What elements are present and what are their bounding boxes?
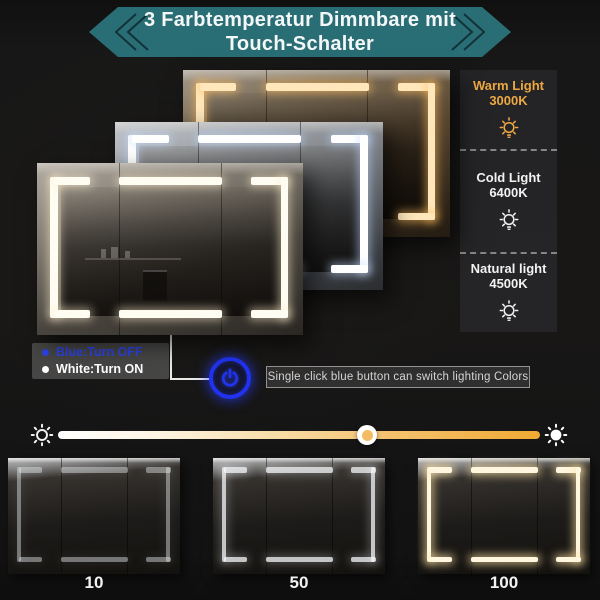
- reflected-bottle: [101, 249, 106, 258]
- led-strip: [222, 467, 227, 562]
- led-strip: [281, 177, 288, 318]
- legend-row-on: White:Turn ON: [42, 362, 169, 377]
- led-strip: [61, 467, 127, 472]
- reflected-towel: [143, 270, 167, 301]
- led-strip: [429, 467, 452, 472]
- touch-tip-text: Single click blue button can switch ligh…: [268, 371, 529, 383]
- mirror-brightness-50: [213, 458, 385, 574]
- touch-tip-box: Single click blue button can switch ligh…: [266, 366, 530, 388]
- brightness-level-10: 10: [8, 572, 180, 594]
- led-strip: [251, 310, 288, 318]
- legend-on-label: White:Turn ON: [56, 362, 143, 377]
- callout-line-horizontal: [170, 378, 211, 380]
- led-strip: [266, 83, 369, 91]
- mode-label: Cold Light: [476, 170, 540, 185]
- light-mode-panel: Warm Light 3000K Cold Light 6400K: [460, 70, 557, 332]
- led-strip: [61, 557, 127, 562]
- led-strip: [54, 310, 90, 318]
- led-strip: [266, 467, 332, 472]
- dimmer-slider-track[interactable]: [58, 431, 540, 439]
- brightness-level-50: 50: [213, 572, 385, 594]
- led-strip: [224, 467, 247, 472]
- light-mode-warm: Warm Light 3000K: [460, 70, 557, 149]
- mode-label: Natural light: [471, 261, 547, 276]
- mode-label: Warm Light: [473, 78, 544, 93]
- page-background: 3 Farbtemperatur Dimmbare mit Touch-Scha…: [0, 0, 600, 600]
- mode-kelvin: 3000K: [473, 93, 544, 108]
- led-strip: [360, 135, 368, 273]
- led-strip: [331, 265, 369, 273]
- page-title-line1: 3 Farbtemperatur Dimmbare mit: [144, 8, 456, 32]
- reflected-bottle: [125, 251, 130, 258]
- sun-dim-icon: [29, 422, 55, 448]
- led-strip: [429, 557, 452, 562]
- led-strip: [166, 467, 171, 562]
- led-strip: [224, 557, 247, 562]
- led-strip: [471, 557, 537, 562]
- page-title: 3 Farbtemperatur Dimmbare mit Touch-Scha…: [88, 6, 512, 58]
- blue-dot-icon: [42, 349, 49, 356]
- sun-bright-icon: [543, 422, 569, 448]
- reflected-bottle: [111, 247, 118, 257]
- mode-kelvin: 4500K: [471, 276, 547, 291]
- led-strip: [119, 177, 221, 185]
- led-strip: [19, 467, 42, 472]
- legend-row-off: Blue:Turn OFF: [42, 345, 169, 360]
- led-strip: [119, 310, 221, 318]
- led-strip: [266, 557, 332, 562]
- light-mode-natural: Natural light 4500K: [460, 254, 557, 332]
- power-icon: [219, 367, 241, 389]
- white-dot-icon: [42, 366, 49, 373]
- led-strip: [427, 467, 432, 562]
- brightness-level-100: 100: [418, 572, 590, 594]
- bulb-icon: [497, 207, 521, 234]
- led-strip: [198, 135, 301, 143]
- led-strip: [54, 177, 90, 185]
- led-strip: [371, 467, 376, 562]
- dimmer-slider-handle[interactable]: [357, 425, 377, 445]
- led-strip: [200, 83, 236, 91]
- led-strip: [50, 177, 57, 318]
- title-banner: 3 Farbtemperatur Dimmbare mit Touch-Scha…: [88, 6, 512, 58]
- led-strip: [17, 467, 22, 562]
- led-strip: [471, 467, 537, 472]
- led-strip: [556, 557, 580, 562]
- bulb-icon: [497, 298, 521, 325]
- legend-box: Blue:Turn OFF White:Turn ON: [32, 343, 169, 379]
- led-strip: [19, 557, 42, 562]
- led-strip: [351, 557, 375, 562]
- mode-kelvin: 6400K: [476, 185, 540, 200]
- bulb-icon: [497, 115, 521, 142]
- mirror-brightness-10: [8, 458, 180, 574]
- mirror-reflection: [61, 187, 282, 316]
- dimmer-handle-center: [362, 430, 373, 441]
- led-strip: [132, 135, 168, 143]
- light-mode-cold: Cold Light 6400K: [460, 149, 557, 254]
- mirror-brightness-100: [418, 458, 590, 574]
- touch-power-button[interactable]: [209, 357, 251, 399]
- page-title-line2: Touch-Schalter: [226, 32, 374, 56]
- reflected-shelf: [85, 258, 181, 260]
- led-strip: [146, 557, 170, 562]
- led-strip: [398, 213, 435, 221]
- mirror-natural-light: [37, 163, 303, 335]
- legend-off-label: Blue:Turn OFF: [56, 345, 143, 360]
- led-strip: [576, 467, 581, 562]
- led-strip: [428, 83, 435, 220]
